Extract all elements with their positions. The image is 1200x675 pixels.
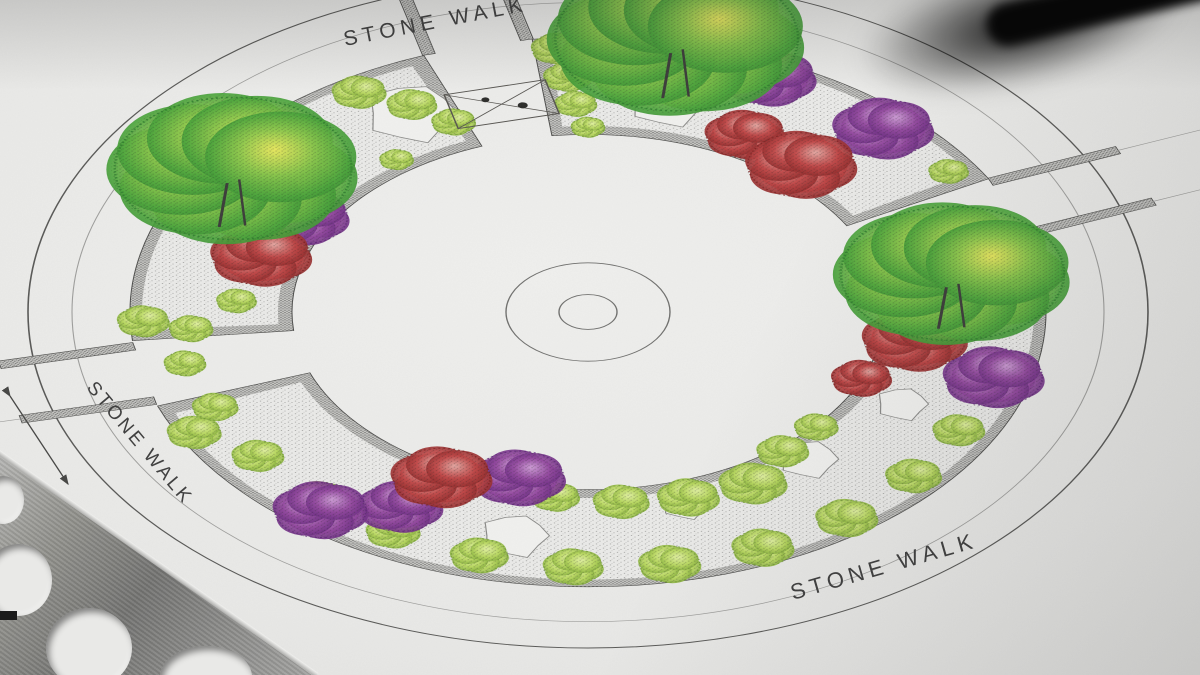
ruler-engraving-mark: [0, 611, 17, 620]
photo-of-garden-plan: STONE WALK STONE WALK STONE WALK: [0, 0, 1200, 675]
